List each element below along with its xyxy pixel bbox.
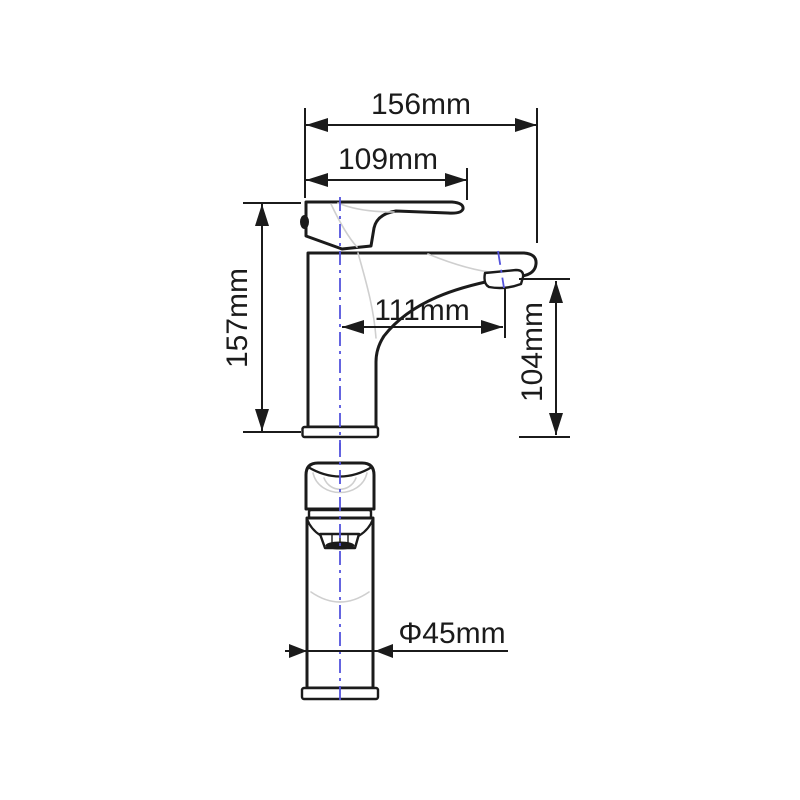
dim-spout-height-label: 104mm — [516, 302, 549, 402]
front-view — [302, 443, 378, 702]
arrowhead-top — [549, 281, 563, 303]
arrowhead-right — [481, 320, 503, 334]
arrowhead-bottom — [255, 409, 269, 431]
dim-total-height-label: 157mm — [221, 268, 254, 368]
arrowhead-left — [289, 644, 307, 658]
dim-base-diameter-label: Φ45mm — [398, 617, 505, 650]
arrowhead-right — [515, 118, 537, 132]
faucet-technical-drawing: 156mm 109mm 157mm 111mm 104mm — [0, 0, 800, 800]
dim-overall-width-label: 156mm — [371, 88, 471, 121]
dim-handle-width-label: 109mm — [338, 143, 438, 176]
dimension-spout-height: 104mm — [516, 279, 570, 437]
dim-spout-reach-label: 111mm — [374, 294, 470, 327]
handle-indicator-dot — [300, 215, 309, 229]
drawing-svg: 156mm 109mm 157mm 111mm 104mm — [0, 0, 800, 800]
arrowhead-right — [375, 644, 393, 658]
dimension-handle-width: 109mm — [306, 143, 467, 200]
faucet-handle-side — [306, 202, 463, 249]
arrowhead-left — [306, 118, 328, 132]
arrowhead-top — [255, 204, 269, 226]
dimension-total-height: 157mm — [221, 203, 301, 432]
arrowhead-right — [445, 173, 467, 187]
arrowhead-left — [306, 173, 328, 187]
arrowhead-bottom — [549, 413, 563, 435]
